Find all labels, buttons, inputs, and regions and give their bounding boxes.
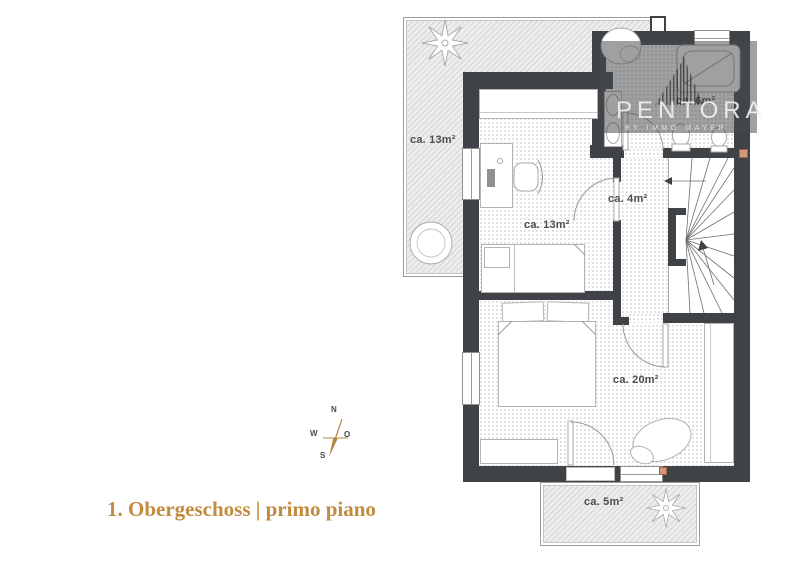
bedroom-master-area-label: ca. 20m² bbox=[613, 374, 659, 386]
watermark-tagline: BY IMMO MAYER bbox=[625, 125, 727, 132]
door-balcony bbox=[568, 421, 614, 465]
compass-north-label: N bbox=[331, 405, 337, 414]
plant-bush-terrace bbox=[410, 222, 452, 264]
compass-east-label: O bbox=[344, 430, 350, 439]
balcony-area-label: ca. 5m² bbox=[584, 496, 623, 508]
bedroom-small-area-label: ca. 13m² bbox=[524, 219, 570, 231]
plant-star-terrace bbox=[422, 20, 468, 66]
plant-star-balcony bbox=[646, 488, 685, 527]
stair-arrow-top bbox=[664, 177, 672, 185]
terrace-area-label: ca. 13m² bbox=[410, 134, 456, 146]
floor-plan-canvas: ca. 13m² ca. 13m² ca. 6m² ca. 4m² ca. 20… bbox=[0, 0, 800, 565]
watermark-brand: PENTORA bbox=[616, 97, 767, 125]
watermark-overlay: PENTORA BY IMMO MAYER bbox=[599, 41, 757, 133]
compass-west-label: W bbox=[310, 429, 318, 438]
stair-arrow-mid bbox=[698, 240, 708, 251]
hall-area-label: ca. 4m² bbox=[608, 193, 647, 205]
door-bedroom-master bbox=[623, 324, 668, 367]
staircase bbox=[664, 158, 734, 313]
compass-south-label: S bbox=[320, 451, 325, 460]
bed-fold-lines bbox=[498, 244, 596, 335]
plant-bedroom-master bbox=[627, 411, 697, 469]
desk-chair bbox=[498, 159, 543, 195]
floor-title: 1. Obergeschoss | primo piano bbox=[107, 497, 376, 522]
